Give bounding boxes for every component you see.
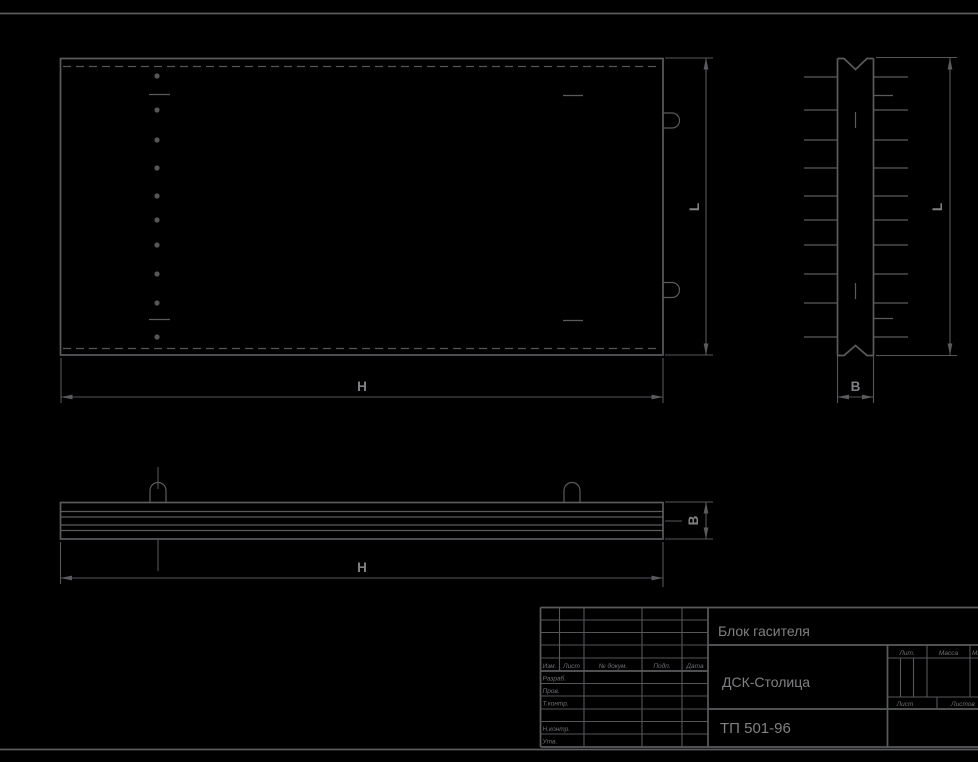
header-litera: Лит. <box>898 650 914 657</box>
bottom-dim-B-label: B <box>686 515 701 525</box>
drawing-canvas: L H <box>0 0 978 762</box>
row-t-control: Т.контр. <box>543 701 569 708</box>
side-view-top-notch <box>838 59 874 70</box>
document-title: Блок гасителя <box>718 623 810 639</box>
bottom-dimension-H: H <box>61 542 664 587</box>
drawing-frame <box>0 14 978 750</box>
plan-view-lifting-loops <box>663 113 680 298</box>
bottom-view-lifting-loops <box>150 483 580 503</box>
row-developed: Разраб. <box>543 675 567 683</box>
bottom-dimension-B: B <box>665 502 713 539</box>
header-date: Дата <box>685 663 704 670</box>
header-list: Лист <box>562 663 580 670</box>
plan-view-hidden-edges <box>63 67 660 349</box>
bottom-dim-H-label: H <box>357 560 367 575</box>
technical-drawing: L H <box>0 0 978 762</box>
plan-view-rivet-dots <box>154 73 159 339</box>
side-dimension-L: L <box>876 58 957 356</box>
side-view-left-teeth <box>804 77 837 337</box>
label-sheets: Листов <box>950 701 975 708</box>
side-view-right-teeth <box>874 77 908 337</box>
bottom-view-layer-lines <box>61 512 664 531</box>
plan-dimension-L: L <box>665 58 713 355</box>
title-block: Изм. Лист № докум. Подп. Дата Разраб. Пр… <box>541 608 978 748</box>
organization-name: ДСК-Столица <box>722 674 810 690</box>
side-view-bottom-notch <box>838 346 874 356</box>
plan-view <box>61 59 680 356</box>
side-view <box>804 59 908 356</box>
row-checked: Пров. <box>543 688 560 695</box>
side-dim-B-label: B <box>851 379 861 394</box>
label-sheet: Лист <box>896 701 914 708</box>
header-izm: Изм. <box>543 663 557 670</box>
header-sign: Подп. <box>653 662 670 670</box>
header-mass: Масса <box>939 650 959 657</box>
row-n-control: Н.контр. <box>543 726 571 733</box>
row-approved: Утв. <box>542 739 558 746</box>
side-dimension-B: B <box>838 356 874 404</box>
header-doc: № докум. <box>599 662 628 670</box>
plan-view-outline <box>61 59 664 356</box>
plan-view-weld-ticks <box>149 95 583 321</box>
plan-dim-H-label: H <box>357 379 367 394</box>
bottom-view-outline <box>61 503 664 540</box>
bottom-view <box>61 467 664 571</box>
plan-dimension-H: H <box>61 358 663 403</box>
document-number: ТП 501-96 <box>720 720 791 737</box>
plan-dim-L-label: L <box>687 203 702 211</box>
side-dim-L-label: L <box>930 203 945 211</box>
header-scale: Масштаб <box>972 649 978 657</box>
